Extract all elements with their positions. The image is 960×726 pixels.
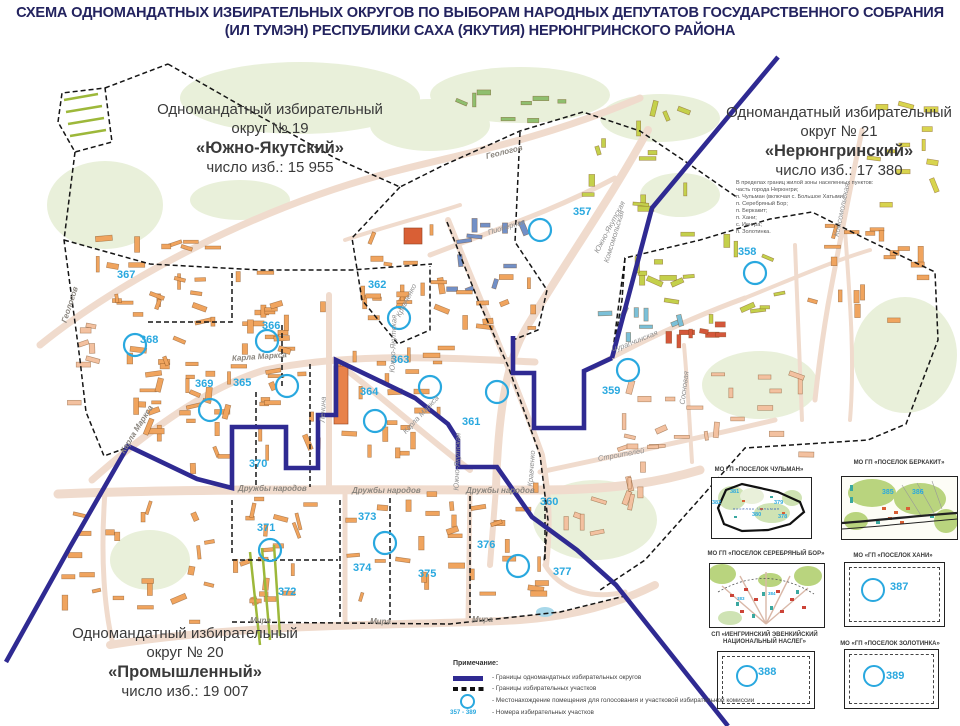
- precinct-number-370: 370: [249, 458, 267, 470]
- inset-chulman-title: МО ГП «ПОСЕЛОК ЧУЛЬМАН»: [703, 467, 815, 474]
- electoral-districts-scheme: СХЕМА ОДНОМАНДАТНЫХ ИЗБИРАТЕЛЬНЫХ ОКРУГО…: [0, 0, 960, 726]
- street-label-mira-3: Мира: [472, 615, 493, 624]
- district-20-label: Одномандатный избирательный округ № 20 «…: [35, 624, 335, 701]
- street-label-druzhby-narodov-3: Дружбы народов: [466, 486, 535, 495]
- inset-berkakit-box: [841, 476, 958, 540]
- precinct-number-380: 380: [752, 512, 761, 518]
- district-19-line1: Одномандатный избирательный: [120, 100, 420, 119]
- inset-khani-box: [844, 562, 945, 627]
- precinct-number-377: 377: [553, 566, 571, 578]
- district-boundary-legend-icon: [453, 676, 483, 681]
- street-label-mira-1: Мира: [250, 616, 271, 625]
- legend-heading: Примечание:: [453, 660, 498, 667]
- precinct-number-368: 368: [140, 334, 158, 346]
- district-19-name: «Южно-Якутский»: [120, 138, 420, 158]
- district-21-line2: округ № 21: [718, 122, 960, 141]
- district-20-voters: число изб.: 19 007: [35, 682, 335, 701]
- precinct-boundary-legend-icon: [453, 687, 484, 691]
- legend-item-label: - Границы избирательных участков: [492, 685, 596, 692]
- precinct-number-386: 386: [912, 489, 924, 496]
- street-label-lenina: Ленина: [318, 396, 328, 422]
- inset-khani-title: МО «ГП «ПОСЕЛОК ХАНИ»: [843, 553, 943, 560]
- precinct-number-374: 374: [353, 562, 371, 574]
- precinct-number-360: 360: [540, 496, 558, 508]
- inset-serebryany-bor-title: МО ГП «ПОСЕЛОК СЕРЕБРЯНЫЙ БОР»: [701, 551, 831, 558]
- street-label-druzhby-narodov-2: Дружбы народов: [352, 486, 421, 495]
- precinct-number-359: 359: [602, 385, 620, 397]
- precinct-number-373: 373: [358, 511, 376, 523]
- polling-place-circle-387: [861, 578, 885, 602]
- district-21-line1: Одномандатный избирательный: [718, 103, 960, 122]
- district-19-line2: округ № 19: [120, 119, 420, 138]
- precinct-number-384: 384: [768, 591, 776, 596]
- district-19-label: Одномандатный избирательный округ № 19 «…: [120, 100, 420, 177]
- precinct-number-383: 383: [737, 596, 745, 601]
- precinct-number-range: 357 - 389: [450, 709, 476, 716]
- page-title: СХЕМА ОДНОМАНДАТНЫХ ИЗБИРАТЕЛЬНЫХ ОКРУГО…: [0, 4, 960, 40]
- precinct-number-366: 366: [262, 320, 280, 332]
- polling-place-circle-389: [863, 665, 885, 687]
- precinct-number-375: 375: [418, 568, 436, 580]
- chulman-place-label: поселок Чульман: [733, 506, 780, 511]
- inset-berkakit-map: [842, 477, 957, 539]
- legend-item-label: - Границы одномандатных избирательных ок…: [492, 674, 641, 681]
- district-21-name: «Нерюнгринский»: [718, 141, 960, 161]
- precinct-number-367: 367: [117, 269, 135, 281]
- precinct-number-358: 358: [738, 246, 756, 258]
- page-title-line1: СХЕМА ОДНОМАНДАТНЫХ ИЗБИРАТЕЛЬНЫХ ОКРУГО…: [0, 4, 960, 22]
- inset-iengra-title: СП «ИЕНГРИНСКИЙ ЭВЕНКИЙСКИЙ НАЦИОНАЛЬНЫЙ…: [707, 632, 822, 646]
- legend-item-label: - Номера избирательных участков: [492, 709, 594, 716]
- district-21-voters: число изб.: 17 380: [718, 161, 960, 180]
- district-20-line2: округ № 20: [35, 643, 335, 662]
- district-20-line1: Одномандатный избирательный: [35, 624, 335, 643]
- district-20-name: «Промышленный»: [35, 662, 335, 682]
- district-21-note: В пределах границ жилой зоны населенных …: [736, 180, 916, 236]
- precinct-number-389: 389: [886, 670, 904, 682]
- inset-berkakit-title: МО ГП «ПОСЕЛОК БЕРКАКИТ»: [840, 460, 958, 467]
- street-label-druzhby-narodov-1: Дружбы народов: [238, 484, 307, 493]
- precinct-number-369: 369: [195, 378, 213, 390]
- polling-place-legend-icon: [460, 694, 475, 709]
- district-21-label: Одномандатный избирательный округ № 21 «…: [718, 103, 960, 180]
- precinct-number-362: 362: [368, 279, 386, 291]
- precinct-number-376: 376: [477, 539, 495, 551]
- precinct-number-381: 381: [730, 489, 739, 495]
- precinct-number-361: 361: [462, 416, 480, 428]
- page-title-line2: (ИЛ ТУМЭН) РЕСПУБЛИКИ САХА (ЯКУТИЯ) НЕРЮ…: [0, 22, 960, 40]
- inset-serebryany-bor-map: [710, 564, 824, 627]
- precinct-number-387: 387: [890, 581, 908, 593]
- precinct-number-364: 364: [360, 386, 378, 398]
- polling-place-circle-388: [736, 665, 758, 687]
- inset-zolotinka-title: МО «ГП «ПОСЕЛОК ЗОЛОТИНКА»: [839, 641, 941, 648]
- precinct-number-378: 378: [778, 514, 787, 520]
- precinct-number-372: 372: [278, 586, 296, 598]
- district-19-voters: число изб.: 15 955: [120, 158, 420, 177]
- precinct-number-382: 382: [712, 500, 721, 506]
- precinct-number-357: 357: [573, 206, 591, 218]
- legend-item-label: - Местонахождение помещения для голосова…: [492, 697, 754, 704]
- precinct-number-388: 388: [758, 666, 776, 678]
- precinct-number-385: 385: [882, 489, 894, 496]
- inset-serebryany-bor-box: [709, 563, 825, 628]
- street-label-mira-2: Мира: [370, 617, 391, 626]
- precinct-number-365: 365: [233, 377, 251, 389]
- precinct-number-371: 371: [257, 522, 275, 534]
